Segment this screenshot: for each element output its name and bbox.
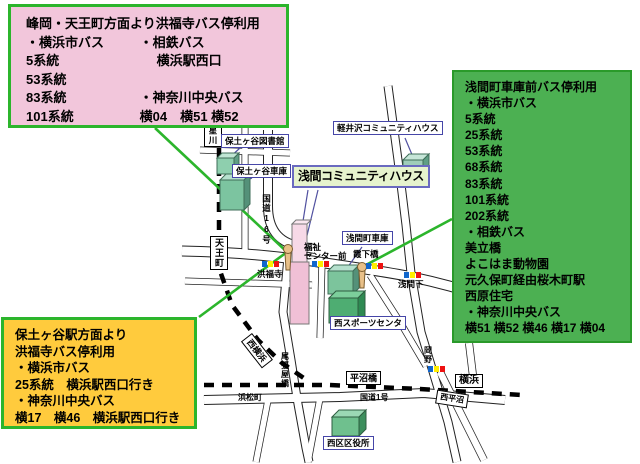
infobox-line: ・神奈川中央バス — [465, 304, 630, 320]
infobox-line: 25系統 — [465, 127, 630, 143]
road-label-kokudo16: 国道16号 — [261, 194, 271, 245]
bus-access-map: 星川 保土ヶ谷図書館 保土ヶ谷車庫 軽井沢コミュニティハウス 浅間コミュニティハ… — [0, 0, 640, 464]
infobox-line: 美立橋 — [465, 240, 630, 256]
infobox-line: 西原住宅 — [465, 288, 630, 304]
infobox-line: ・相鉄バス — [465, 224, 630, 240]
bus-stop-dots-kofukuji — [262, 261, 279, 267]
infobox-row: ・横浜市バス ・相鉄バス — [26, 34, 286, 53]
infobox-line: 洪福寺バス停利用 — [15, 344, 194, 361]
station-label-tennocho: 天王町 — [210, 236, 228, 270]
building-hodogaya-depot — [220, 174, 250, 210]
row-text: 横浜駅西口 — [140, 53, 222, 68]
infobox-line: 202系統 — [465, 208, 630, 224]
infobox-row: 83系統 ・神奈川中央バス — [26, 89, 286, 108]
facility-label-hodogaya-depot: 保土ヶ谷車庫 — [232, 164, 291, 178]
spot-label-fukushi-center: 福祉 センター前 — [304, 243, 347, 261]
row-text: 83系統 — [26, 89, 136, 108]
infobox-row: 峰岡・天王町方面より洪福寺バス停利用 — [26, 15, 286, 34]
road-label-owariyabashi: 尾張屋橋 — [280, 352, 290, 388]
infobox-minooka-tennocho: 峰岡・天王町方面より洪福寺バス停利用 ・横浜市バス ・相鉄バス 5系統 横浜駅西… — [8, 4, 289, 128]
road-label-okano: 岡野 — [423, 346, 433, 364]
infobox-hodogaya: 保土ヶ谷駅方面より 洪福寺バス停利用 ・横浜市バス 25系統 横浜駅西口行き ・… — [1, 317, 197, 429]
building-sengen-depot — [328, 265, 359, 294]
infobox-line: ・横浜市バス — [465, 95, 630, 111]
infobox-line: 横17 横46 横浜駅西口行き — [15, 410, 194, 427]
row-text: ・相鉄バス — [140, 35, 205, 50]
infobox-row: 101系統 横04 横51 横52 — [26, 108, 286, 127]
infobox-sengencho-shako: 浅間町車庫前バス停利用 ・横浜市バス 5系統 25系統 53系統 68系統 83… — [452, 70, 632, 343]
infobox-line: ・横浜市バス — [15, 360, 194, 377]
infobox-line: 元久保町経由桜木町駅 — [465, 272, 630, 288]
fukushi-center-line2: センター前 — [304, 252, 347, 261]
infobox-line: 25系統 横浜駅西口行き — [15, 377, 194, 394]
facility-label-nishi-ward-office: 西区区役所 — [323, 436, 374, 450]
station-label-yokohama: 横浜 — [455, 374, 483, 388]
bus-stop-dots-fukushi-center — [312, 261, 329, 267]
spot-label-kasumishitabashi: 霞下橋 — [353, 250, 379, 260]
facility-label-hodogaya-library: 保土ヶ谷図書館 — [221, 134, 289, 148]
infobox-row: 5系統 横浜駅西口 — [26, 52, 286, 71]
infobox-line: 53系統 — [465, 143, 630, 159]
infobox-line: 68系統 — [465, 159, 630, 175]
row-text: 5系統 — [26, 52, 136, 71]
title-label-sengen-community-house: 浅間コミュニティハウス — [292, 165, 430, 188]
infobox-line: 横51 横52 横46 横17 横04 — [465, 320, 630, 336]
road-label-hamamatsucho: 浜松町 — [238, 393, 262, 403]
road-label-kokudo1: 国道1号 — [360, 393, 388, 403]
bus-stop-dots-okano — [428, 366, 445, 372]
infobox-line: 浅間町車庫前バス停利用 — [465, 79, 630, 95]
infobox-line: ・神奈川中央バス — [15, 393, 194, 410]
infobox-line: よこはま動物園 — [465, 256, 630, 272]
facility-label-nishi-sports-center: 西スポーツセンタ — [330, 316, 406, 330]
row-text: 峰岡・天王町方面より洪福寺バス停利用 — [26, 15, 260, 34]
infobox-line: 保土ヶ谷駅方面より — [15, 327, 194, 344]
row-text: 横04 横51 横52 — [140, 109, 239, 124]
building-sengen-community-house — [290, 220, 311, 324]
station-label-hiranumabashi: 平沼橋 — [346, 371, 381, 385]
row-text: 53系統 — [26, 71, 136, 90]
infobox-line: 83系統 — [465, 176, 630, 192]
building-nishi-ward-office — [332, 410, 366, 436]
spot-label-sengenshita: 浅間下 — [398, 280, 424, 290]
row-text: ・神奈川中央バス — [140, 90, 244, 105]
bus-stop-dots-kasumishitabashi — [366, 263, 383, 269]
infobox-line: 101系統 — [465, 192, 630, 208]
facility-label-sengen-depot: 浅間町車庫 — [342, 231, 393, 245]
bus-stop-dots-sengenshita — [404, 272, 421, 278]
spot-label-kofukuji: 洪福寺 — [257, 270, 283, 280]
infobox-line: 5系統 — [465, 111, 630, 127]
infobox-row: 53系統 — [26, 71, 286, 90]
row-text: 101系統 — [26, 108, 136, 127]
row-text: ・横浜市バス — [26, 34, 136, 53]
facility-label-karuizawa-house: 軽井沢コミュニティハウス — [333, 121, 443, 135]
